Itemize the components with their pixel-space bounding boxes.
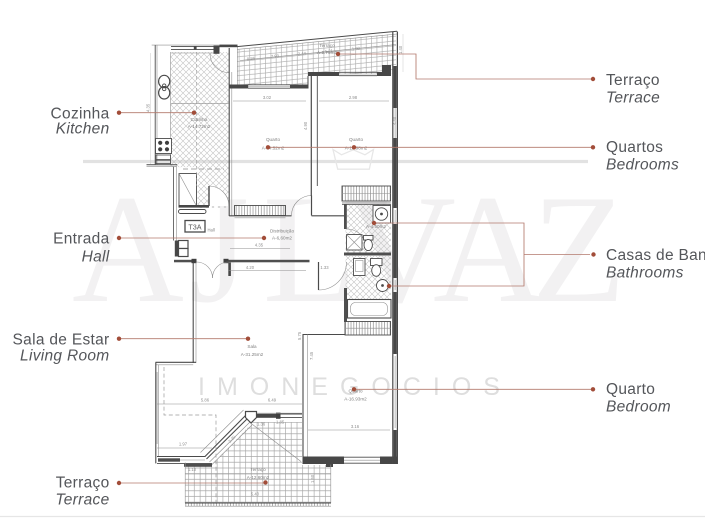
svg-text:A-16.93m2: A-16.93m2: [344, 397, 367, 402]
svg-text:Distribuição: Distribuição: [270, 229, 294, 234]
svg-text:1.10: 1.10: [188, 467, 197, 472]
svg-text:0.86: 0.86: [247, 56, 256, 62]
svg-text:Bedrooms: Bedrooms: [606, 157, 679, 174]
svg-text:A-4.50m2: A-4.50m2: [366, 224, 386, 229]
svg-text:Hall: Hall: [82, 249, 110, 266]
svg-text:A-9.75m2: A-9.75m2: [317, 50, 337, 55]
svg-text:Cozinha: Cozinha: [191, 117, 208, 122]
svg-text:Terraço: Terraço: [56, 475, 110, 492]
svg-text:Terraço: Terraço: [250, 467, 266, 472]
svg-text:Kitchen: Kitchen: [56, 121, 110, 138]
svg-text:Terrace: Terrace: [55, 492, 109, 509]
svg-text:Bathrooms: Bathrooms: [606, 265, 684, 282]
svg-text:Terraço: Terraço: [606, 72, 660, 89]
svg-text:Quarto: Quarto: [266, 137, 280, 142]
svg-text:4.35: 4.35: [255, 243, 264, 248]
svg-text:Sala: Sala: [247, 344, 257, 349]
svg-text:1.85: 1.85: [276, 420, 285, 425]
svg-text:Quartos: Quartos: [606, 139, 663, 156]
svg-text:A-12.60m2: A-12.60m2: [247, 475, 270, 480]
svg-text:2.44: 2.44: [298, 51, 307, 57]
svg-text:Quarto: Quarto: [349, 137, 363, 142]
svg-text:5.75: 5.75: [297, 331, 302, 340]
svg-text:5.40: 5.40: [251, 492, 260, 497]
svg-text:Hall: Hall: [208, 228, 215, 233]
svg-text:A-13.98m2: A-13.98m2: [345, 146, 368, 151]
svg-text:1.50: 1.50: [310, 474, 315, 483]
svg-text:3.16: 3.16: [351, 424, 360, 429]
svg-text:A-14.72m2: A-14.72m2: [188, 124, 211, 129]
svg-text:A-6,60m2: A-6,60m2: [272, 236, 292, 241]
svg-text:T3A: T3A: [188, 223, 201, 232]
svg-text:Terrace: Terrace: [606, 90, 660, 107]
svg-text:4.90: 4.90: [303, 121, 308, 130]
svg-text:1.90: 1.90: [352, 46, 361, 52]
svg-text:Entrada: Entrada: [53, 231, 109, 248]
svg-text:Sala de Estar: Sala de Estar: [13, 332, 110, 349]
svg-text:Living Room: Living Room: [20, 348, 109, 365]
svg-text:1.33: 1.33: [320, 265, 329, 270]
svg-text:Quarto: Quarto: [606, 381, 655, 398]
svg-text:A: A: [433, 163, 545, 335]
svg-text:2.98: 2.98: [349, 95, 358, 100]
svg-text:4.20: 4.20: [246, 265, 255, 270]
svg-text:A-14.52m2: A-14.52m2: [262, 146, 285, 151]
svg-text:1.40: 1.40: [398, 45, 403, 54]
svg-text:1.97: 1.97: [179, 442, 188, 447]
svg-text:5.86: 5.86: [201, 398, 210, 403]
svg-text:A-31.25m2: A-31.25m2: [241, 352, 264, 357]
svg-text:1.36: 1.36: [257, 422, 266, 427]
svg-text:7.93: 7.93: [271, 53, 280, 59]
svg-text:3.02: 3.02: [263, 95, 272, 100]
svg-text:Casas de Banho: Casas de Banho: [606, 247, 705, 264]
svg-text:6.49: 6.49: [268, 398, 277, 403]
svg-text:4.35: 4.35: [146, 103, 151, 112]
svg-text:7.45: 7.45: [309, 351, 314, 360]
svg-text:Terraço: Terraço: [319, 43, 335, 48]
svg-text:Bedroom: Bedroom: [606, 399, 671, 416]
